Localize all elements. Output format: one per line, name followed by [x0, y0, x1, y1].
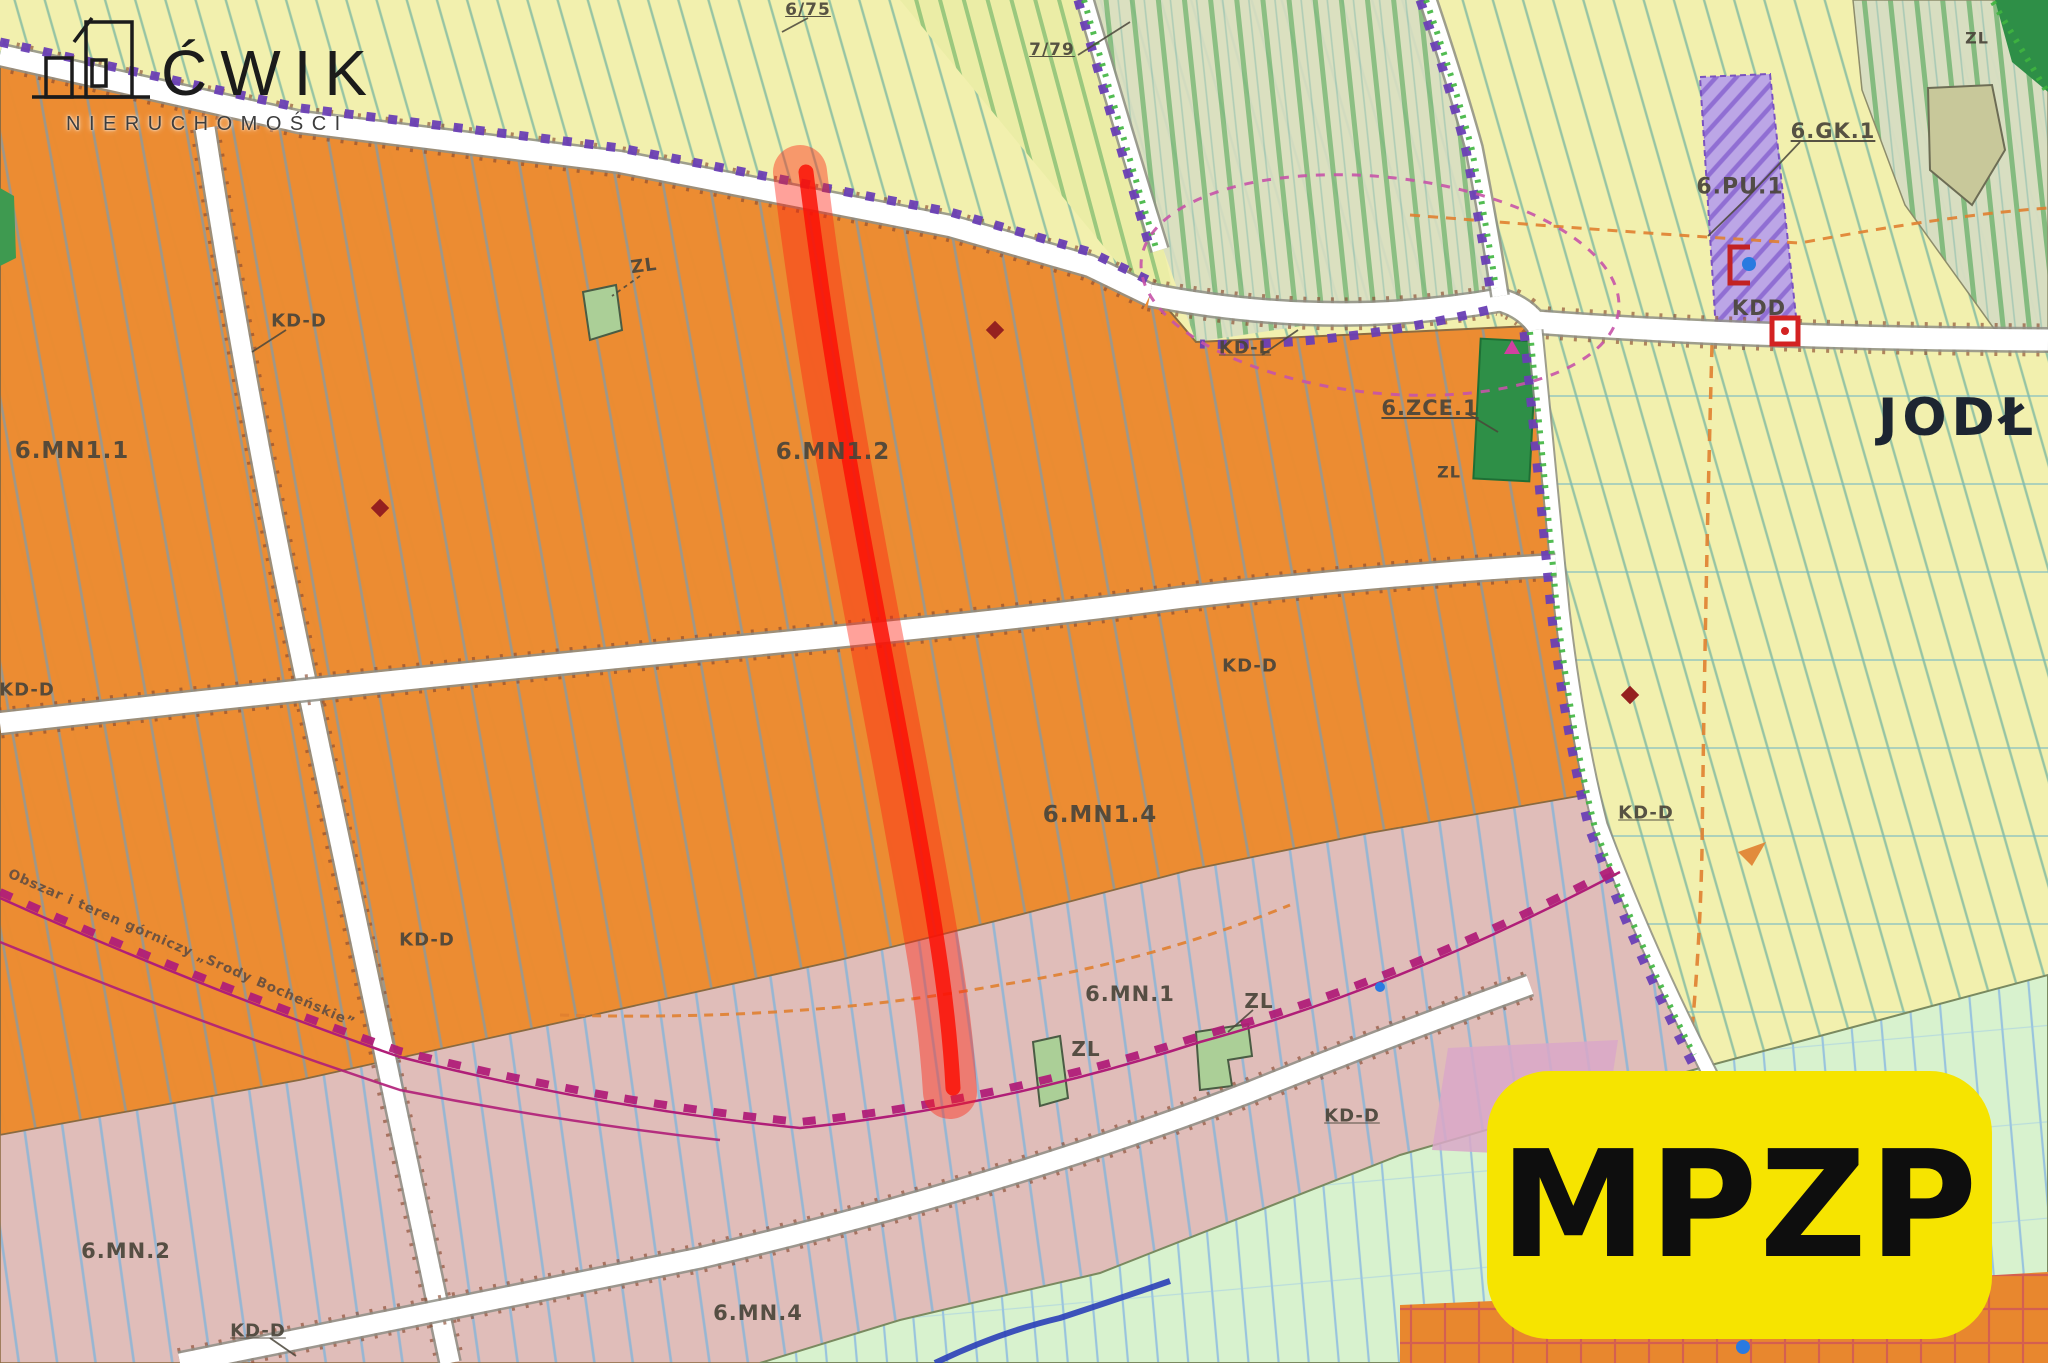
road-label-kd-d: KD-D	[1222, 656, 1278, 677]
road-label-kdd: KDD	[1732, 296, 1786, 320]
agency-logo: ĆWIK NIERUCHOMOŚCI	[30, 8, 430, 136]
road-label-kd-d: KD-D	[1618, 803, 1674, 824]
road-label-kdd-d: KD-D	[271, 311, 327, 332]
zone-label-mn-2: 6.MN.2	[81, 1239, 171, 1263]
zone-label-mn1-2: 6.MN1.2	[776, 439, 891, 465]
zone-label-mn1-1: 6.MN1.1	[15, 438, 130, 464]
logo-name: ĆWIK	[161, 44, 380, 103]
road-label-kdl: KD-L	[1219, 338, 1271, 359]
zone-label-zl: ZL	[1071, 1037, 1100, 1061]
zone-label-zl: ZL	[1965, 29, 1989, 48]
zone-label-zl: ZL	[1437, 463, 1461, 482]
zone-label-mn-4: 6.MN.4	[713, 1301, 803, 1325]
zone-label-zl: ZL	[629, 254, 658, 278]
zone-label-pu1: 6.PU.1	[1696, 175, 1783, 200]
parcel-number-label: 6/75	[785, 0, 831, 20]
parcel-number-label: 7/79	[1029, 40, 1075, 60]
logo-subtitle: NIERUCHOMOŚCI	[66, 113, 430, 136]
zone-label-gk1: 6.GK.1	[1791, 119, 1876, 143]
mpzp-badge-label: MPZP	[1500, 1119, 1980, 1291]
buildings-icon	[30, 8, 155, 103]
zone-label-mn-1: 6.MN.1	[1085, 982, 1175, 1006]
mpzp-badge: MPZP	[1487, 1071, 1992, 1339]
zone-label-zce1: 6.ZCE.1	[1381, 396, 1478, 420]
zone-label-zl: ZL	[1244, 989, 1273, 1013]
road-label-kd-d: KD-D	[230, 1321, 286, 1342]
road-label-kd-d: KD-D	[1324, 1106, 1380, 1127]
place-name: JODŁ	[1878, 388, 2038, 448]
road-label-kd-d: KD-D	[0, 680, 55, 701]
zone-label-mn1-4: 6.MN1.4	[1043, 802, 1158, 828]
zoning-map-image: 6/75 7/79 ZL 6.GK.1 6.PU.1 KDD KD-L 6.ZC…	[0, 0, 2048, 1363]
road-label-kd-d: KD-D	[399, 930, 455, 951]
